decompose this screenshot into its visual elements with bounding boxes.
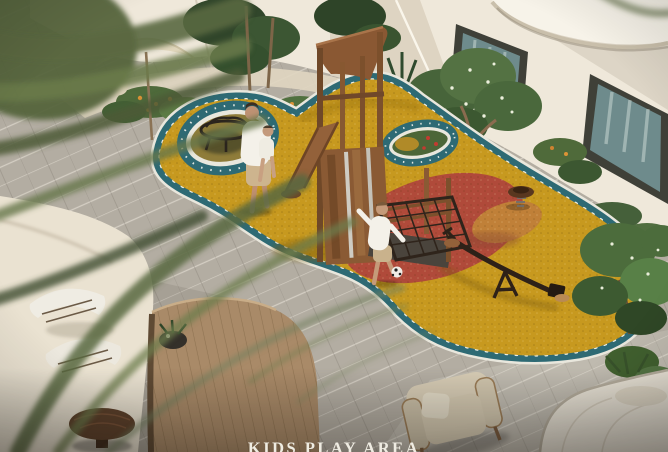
caption-text: KIDS PLAY AREA	[248, 439, 420, 452]
scene-svg: KIDS PLAY AREA	[0, 0, 668, 452]
caption-label: KIDS PLAY AREA	[248, 439, 420, 452]
kids-play-area-render: KIDS PLAY AREA	[0, 0, 668, 452]
